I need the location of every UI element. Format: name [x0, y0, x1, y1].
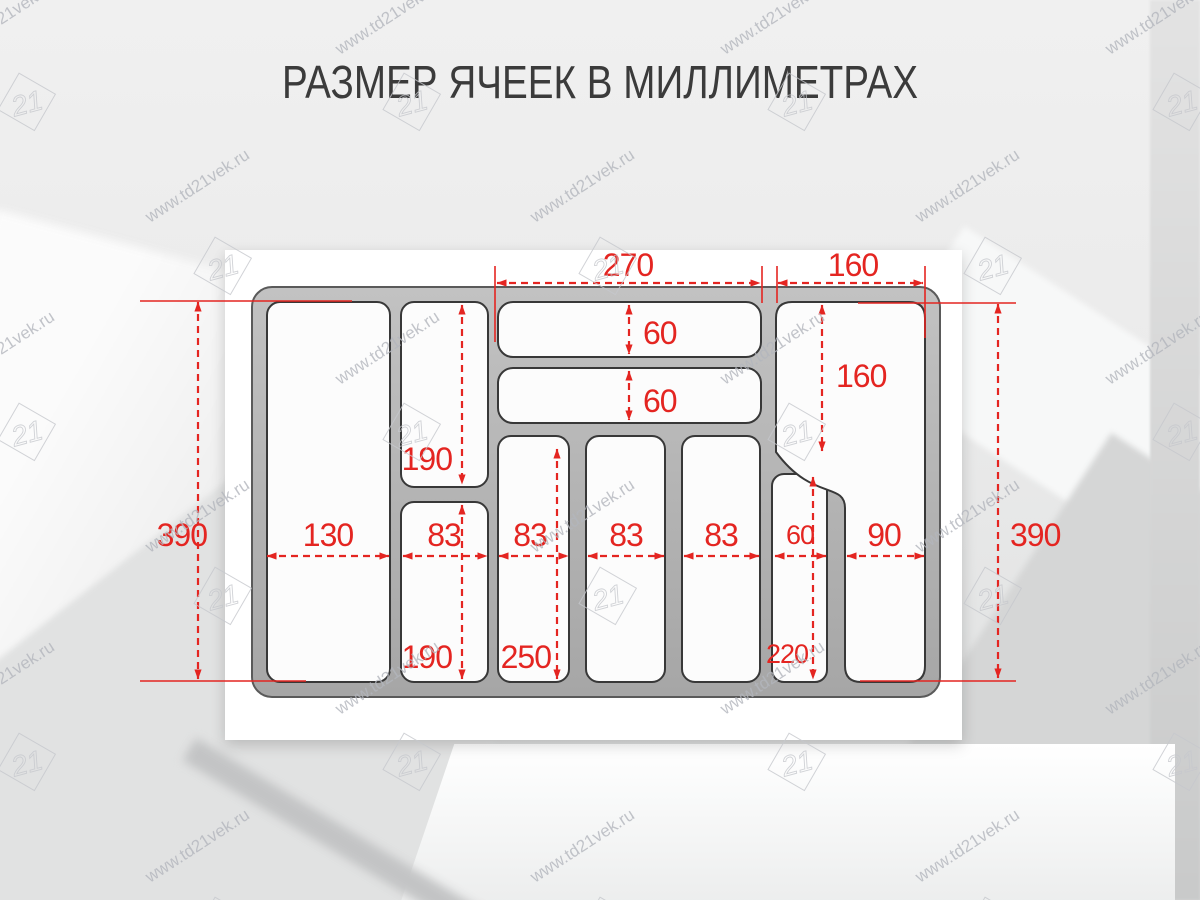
dim-label-220: 220 — [766, 639, 808, 669]
dim-label-83-col2: 83 — [427, 517, 461, 553]
dim-label-83-col3: 83 — [513, 517, 547, 553]
dim-label-83-col4: 83 — [609, 517, 643, 553]
dim-label-160-top: 160 — [828, 247, 879, 283]
cutlery-tray-diagram: 270 160 60 60 160 190 390 130 83 83 83 8… — [0, 0, 1200, 900]
tray-cell-col4 — [586, 436, 665, 682]
dim-label-270-top: 270 — [603, 247, 654, 283]
dim-label-190-top: 190 — [402, 441, 453, 477]
dim-label-390-left: 390 — [157, 517, 208, 553]
dim-label-83-col5: 83 — [704, 517, 738, 553]
dim-label-190-bottom: 190 — [402, 639, 453, 675]
tray-cell-left — [267, 302, 390, 682]
dim-label-60-narrow: 60 — [786, 520, 814, 550]
product-dimension-image: РАЗМЕР ЯЧЕЕК В МИЛЛИМЕТРАХ — [0, 0, 1200, 900]
dim-label-90: 90 — [867, 517, 901, 553]
dim-label-250: 250 — [501, 639, 552, 675]
dim-label-60-slot2: 60 — [643, 383, 677, 419]
tray-cell-col5 — [682, 436, 760, 682]
dim-label-60-slot1: 60 — [643, 315, 677, 351]
dim-label-130: 130 — [303, 517, 354, 553]
cutlery-tray — [252, 287, 940, 697]
dim-label-160-right: 160 — [836, 358, 887, 394]
dim-label-390-right: 390 — [1010, 517, 1061, 553]
